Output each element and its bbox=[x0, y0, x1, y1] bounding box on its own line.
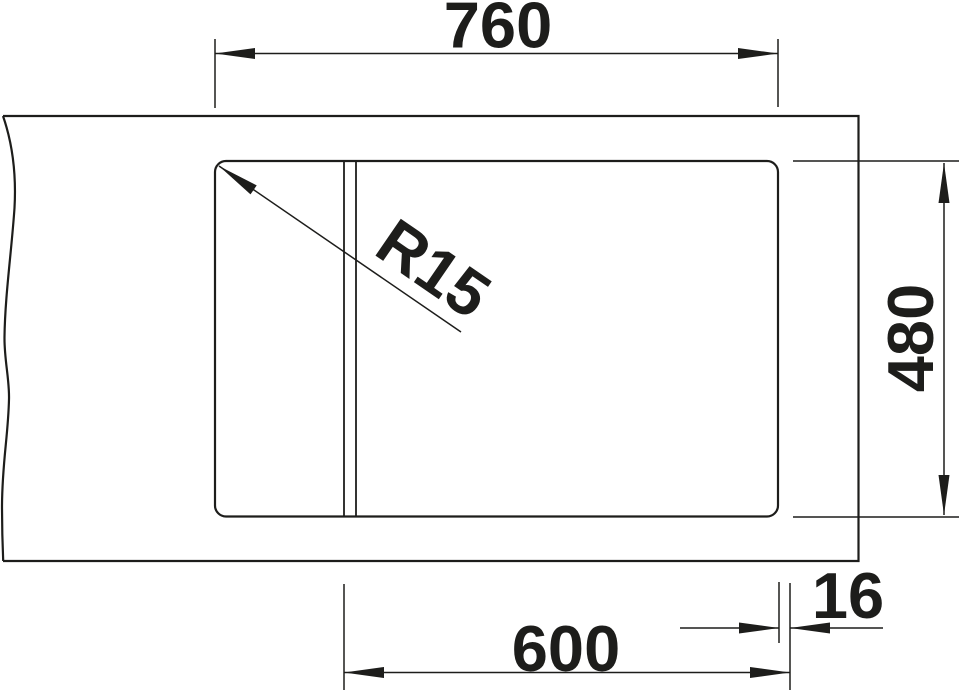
technical-drawing-page: 760 480 600 16 bbox=[0, 0, 960, 691]
arrowhead-right-icon bbox=[739, 623, 779, 634]
arrowhead-up-icon bbox=[939, 163, 950, 203]
corner-radius-callout: R15 bbox=[219, 166, 504, 332]
sink-dimension-drawing: 760 480 600 16 bbox=[0, 0, 960, 691]
dimension-label-overall-depth: 480 bbox=[874, 284, 947, 392]
dimension-overall-width: 760 bbox=[215, 0, 778, 108]
arrowhead-down-icon bbox=[939, 475, 950, 515]
arrowhead-left-icon bbox=[215, 48, 255, 59]
sink-rim-outline bbox=[215, 161, 778, 517]
dimension-edge-offset: 16 bbox=[680, 559, 884, 690]
radius-arrowhead-icon bbox=[219, 166, 257, 194]
dimension-label-edge-offset: 16 bbox=[812, 559, 884, 632]
dimension-cabinet-width: 600 bbox=[344, 584, 790, 690]
arrowhead-right-icon bbox=[750, 667, 790, 678]
arrowhead-left-icon bbox=[344, 667, 384, 678]
dimension-label-overall-width: 760 bbox=[444, 0, 552, 62]
arrowhead-right-icon bbox=[738, 48, 778, 59]
dimension-label-cabinet-width: 600 bbox=[512, 612, 620, 685]
countertop-outline bbox=[3, 116, 859, 561]
countertop-break-line bbox=[2, 116, 15, 561]
dimension-overall-depth: 480 bbox=[793, 161, 959, 517]
